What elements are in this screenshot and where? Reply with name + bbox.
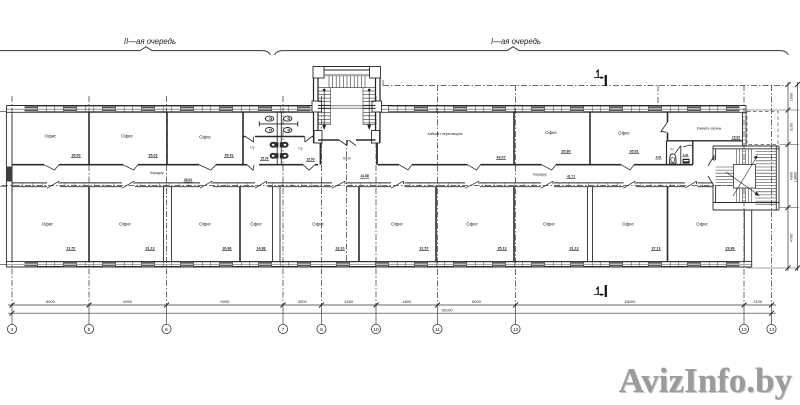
svg-text:4700: 4700 (790, 234, 794, 242)
svg-text:Су: Су (298, 146, 302, 150)
svg-text:3100: 3100 (790, 123, 794, 131)
svg-text:Офис: Офис (622, 222, 634, 227)
svg-text:1900: 1900 (790, 93, 794, 101)
svg-text:4200: 4200 (344, 299, 354, 304)
svg-text:4800: 4800 (402, 299, 412, 304)
svg-text:10: 10 (373, 327, 379, 333)
svg-text:4: 4 (11, 327, 14, 333)
svg-text:AvizInfo.by: AvizInfo.by (619, 361, 793, 400)
svg-text:15.00: 15.00 (732, 136, 740, 140)
svg-text:12: 12 (513, 327, 519, 333)
svg-text:Офис: Офис (121, 134, 133, 139)
svg-text:14.88: 14.88 (360, 174, 369, 178)
svg-text:31.13: 31.13 (146, 247, 155, 251)
svg-text:Офис: Офис (45, 134, 57, 139)
svg-text:35.41: 35.41 (225, 154, 234, 158)
svg-text:43.07: 43.07 (497, 156, 506, 160)
svg-text:5: 5 (88, 327, 91, 333)
svg-text:33.10: 33.10 (336, 247, 345, 251)
svg-text:14: 14 (769, 327, 775, 333)
svg-text:31.57: 31.57 (420, 247, 429, 251)
svg-text:Офис: Офис (312, 222, 324, 227)
svg-text:31.57: 31.57 (67, 247, 76, 251)
svg-text:14.88: 14.88 (257, 247, 266, 251)
svg-text:Холл: Холл (343, 157, 351, 161)
svg-text:3000: 3000 (298, 299, 308, 304)
svg-text:18000: 18000 (624, 299, 636, 304)
svg-text:Коридор: Коридор (533, 173, 547, 177)
svg-text:Офис: Офис (199, 222, 211, 227)
svg-text:15.00: 15.00 (261, 156, 269, 160)
svg-text:8: 8 (320, 327, 323, 333)
svg-text:3.05: 3.05 (656, 155, 662, 159)
svg-text:Офис: Офис (543, 222, 555, 227)
svg-text:6: 6 (165, 327, 168, 333)
svg-text:Су: Су (670, 147, 674, 151)
svg-text:Офис: Офис (42, 222, 54, 227)
svg-text:9000: 9000 (220, 299, 230, 304)
svg-text:Су: Су (250, 145, 254, 149)
svg-text:13800: 13800 (794, 172, 798, 183)
svg-text:6000: 6000 (472, 299, 482, 304)
svg-text:31.13: 31.13 (570, 247, 579, 251)
svg-text:Офис: Офис (199, 135, 211, 140)
svg-text:35.00: 35.00 (72, 154, 81, 158)
svg-text:Офис: Офис (545, 130, 557, 135)
svg-text:36.00: 36.00 (184, 178, 192, 182)
svg-text:41.71: 41.71 (567, 175, 575, 179)
svg-text:30.86: 30.86 (223, 247, 232, 251)
svg-text:Офис: Офис (391, 222, 403, 227)
svg-text:Кабинет переговоров: Кабинет переговоров (428, 132, 463, 136)
svg-text:35.80: 35.80 (562, 150, 571, 154)
svg-text:35.03: 35.03 (149, 154, 158, 158)
svg-text:Офис: Офис (250, 222, 262, 227)
svg-text:7: 7 (282, 327, 285, 333)
svg-text:Офис: Офис (466, 222, 478, 227)
svg-text:59100: 59100 (441, 307, 453, 312)
svg-text:35.81: 35.81 (630, 150, 639, 154)
svg-text:I—ая очередь: I—ая очередь (491, 37, 541, 46)
svg-text:13: 13 (741, 327, 747, 333)
svg-text:3.05: 3.05 (683, 153, 689, 157)
svg-text:37.13: 37.13 (652, 247, 661, 251)
svg-text:Коридор: Коридор (150, 171, 164, 175)
svg-text:11: 11 (435, 327, 440, 333)
svg-text:2100: 2100 (753, 299, 763, 304)
svg-text:29.88: 29.88 (726, 247, 735, 251)
svg-text:6000: 6000 (46, 299, 56, 304)
svg-text:15.00: 15.00 (307, 157, 315, 161)
svg-text:II—ая очередь: II—ая очередь (124, 37, 176, 46)
svg-text:Офис: Офис (618, 131, 630, 136)
svg-text:Офис: Офис (119, 222, 131, 227)
svg-text:6000: 6000 (123, 299, 133, 304)
svg-text:35.13: 35.13 (498, 247, 507, 251)
svg-text:Офис: Офис (696, 222, 708, 227)
svg-text:Комната охраны: Комната охраны (697, 127, 722, 131)
